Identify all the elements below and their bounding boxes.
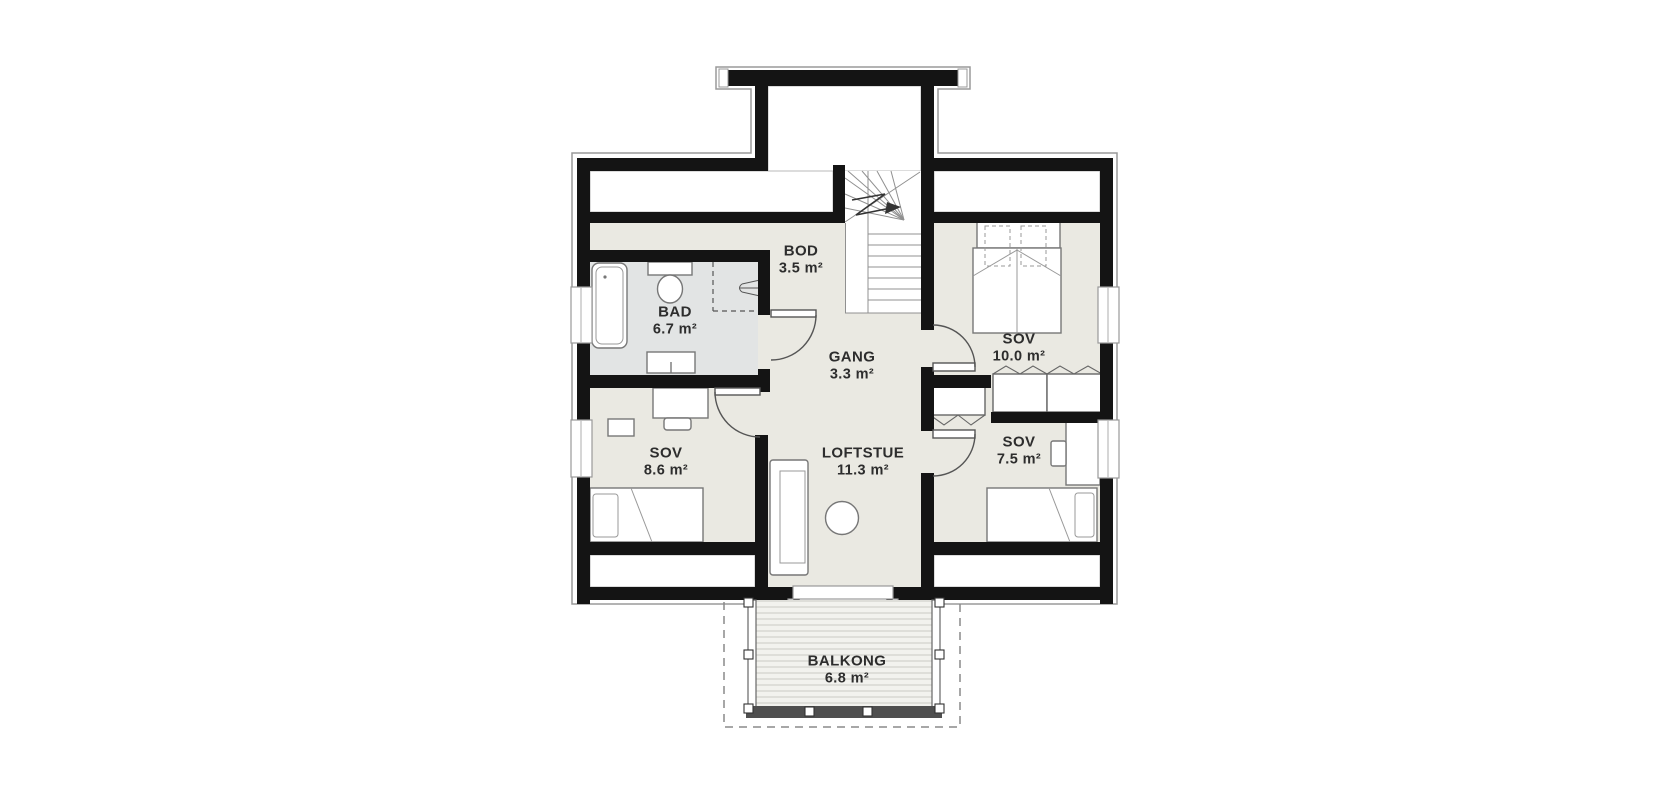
door-leaf-bad bbox=[771, 310, 816, 317]
door-leaf-sov2 bbox=[715, 388, 760, 395]
toilet-tank bbox=[648, 262, 692, 275]
wardrobe bbox=[1047, 374, 1101, 412]
door-leaf-sov1 bbox=[933, 363, 975, 371]
door-leaf-sov3 bbox=[933, 430, 975, 438]
desk bbox=[1066, 417, 1100, 485]
balcony-door-sill bbox=[793, 586, 893, 600]
double-bed-headboard bbox=[977, 221, 1060, 248]
desk bbox=[653, 388, 708, 418]
dresser bbox=[608, 419, 634, 436]
round-table bbox=[826, 502, 859, 535]
floor-plan-canvas bbox=[0, 0, 1670, 800]
desk-chair bbox=[664, 418, 691, 430]
toilet-bowl bbox=[658, 275, 683, 303]
balcony bbox=[724, 598, 960, 727]
floor-plan-page: BOD 3.5 m² BAD 6.7 m² GANG 3.3 m² SOV 10… bbox=[0, 0, 1670, 800]
desk-chair bbox=[1051, 441, 1066, 466]
wardrobe bbox=[993, 374, 1047, 412]
staircase bbox=[845, 171, 921, 313]
closet bbox=[930, 385, 985, 415]
balcony-deck bbox=[756, 600, 932, 708]
